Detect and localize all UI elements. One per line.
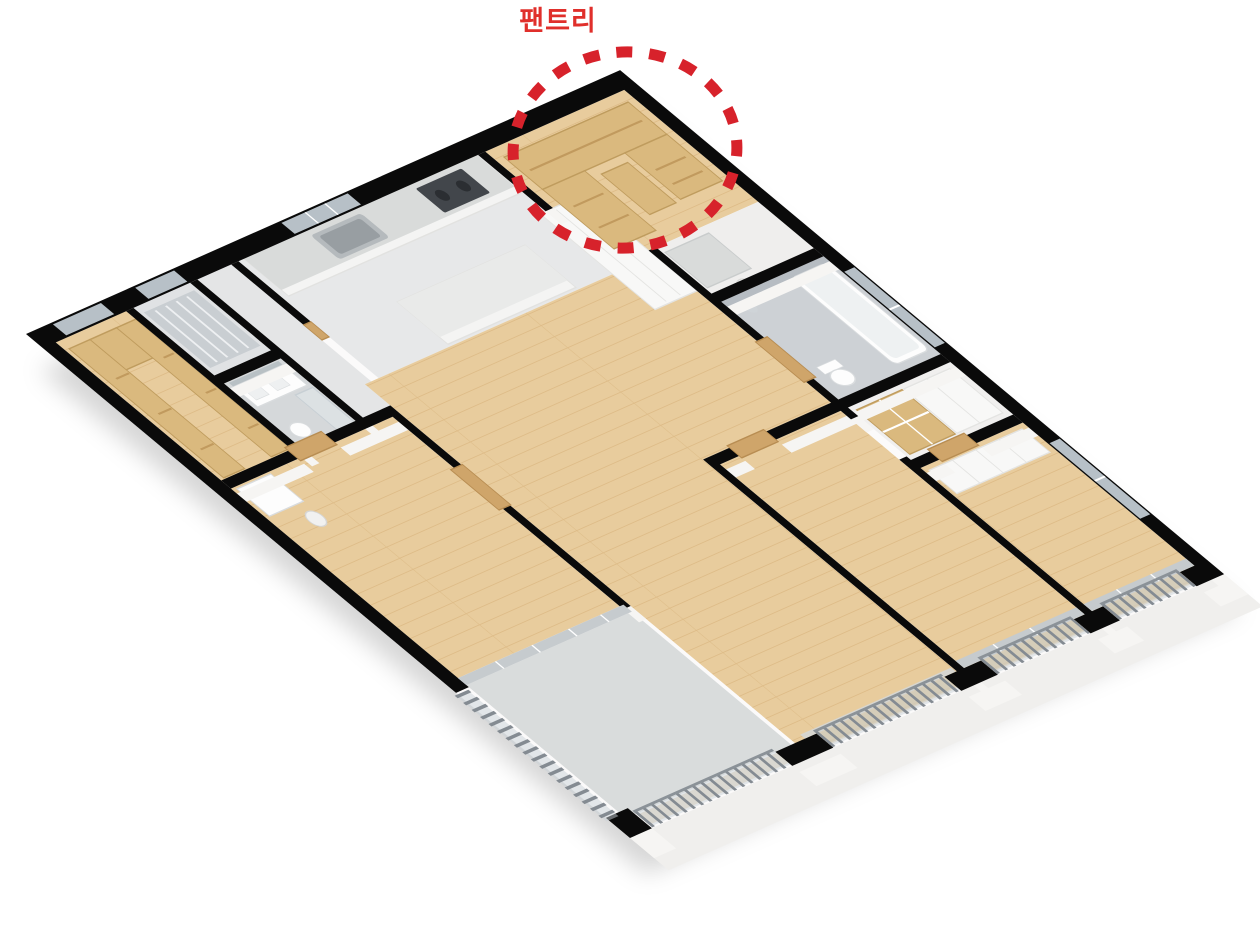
pantry-label: 팬트리 xyxy=(519,6,597,36)
floor-plan-scene: 팬트리 xyxy=(0,0,1260,944)
building xyxy=(26,70,1260,870)
floor-plan-svg: 팬트리 xyxy=(0,0,1260,944)
